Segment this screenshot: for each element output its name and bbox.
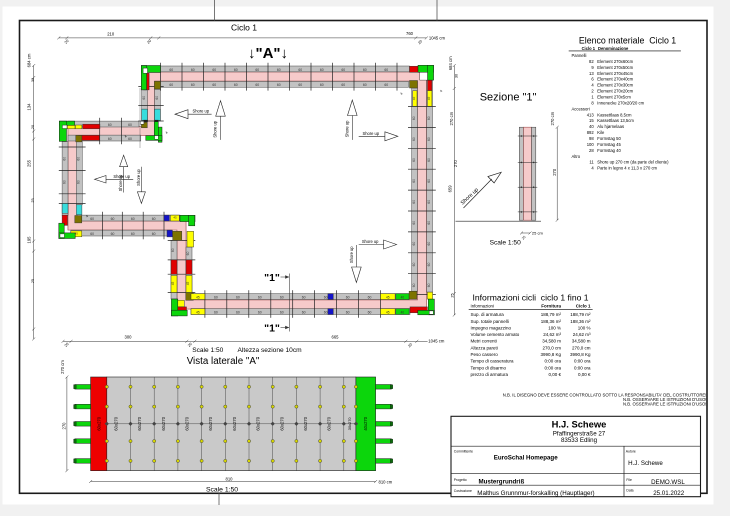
svg-text:60: 60 [302,295,306,299]
svg-text:665: 665 [332,334,340,339]
svg-text:60: 60 [234,68,238,72]
svg-text:270: 270 [62,422,67,430]
svg-text:100 %: 100 % [578,325,591,330]
svg-text:45: 45 [386,295,390,299]
svg-text:34,580 m: 34,580 m [572,339,591,344]
svg-text:134: 134 [26,103,31,111]
svg-text:Altro: Altro [572,154,581,159]
svg-text:810: 810 [226,476,234,481]
svg-text:60: 60 [412,242,416,246]
svg-text:60: 60 [341,68,345,72]
svg-text:60: 60 [384,68,388,72]
svg-text:659: 659 [448,185,453,193]
svg-text:270: 270 [453,159,458,167]
svg-text:Accessori: Accessori [572,106,590,111]
svg-text:100: 100 [587,142,595,147]
svg-text:Denominazione: Denominazione [598,46,629,51]
svg-text:Element 270x45cm: Element 270x45cm [597,71,633,76]
svg-text:60: 60 [298,83,302,87]
svg-text:30: 30 [455,74,459,78]
svg-text:60: 60 [255,68,259,72]
svg-text:60: 60 [427,179,431,183]
svg-text:60: 60 [368,310,372,314]
svg-text:60: 60 [427,263,431,267]
svg-text:Malthus Grunnmur-forskalling (: Malthus Grunnmur-forskalling (Hauptlager… [477,490,594,497]
svg-text:↓"A"↓: ↓"A"↓ [248,45,288,62]
svg-text:Sup. di armatura: Sup. di armatura [471,312,505,317]
svg-text:60: 60 [111,232,115,236]
svg-text:45: 45 [173,216,177,220]
svg-text:Autore: Autore [626,449,636,453]
svg-text:60: 60 [363,83,367,87]
svg-text:45: 45 [427,97,431,101]
svg-text:60: 60 [368,295,372,299]
svg-text:Element 270x50cm: Element 270x50cm [597,65,633,70]
svg-text:98: 98 [589,136,594,141]
svg-text:60: 60 [171,248,175,252]
svg-text:"1": "1" [264,272,280,284]
svg-text:Scale 1:50: Scale 1:50 [206,487,238,494]
svg-text:60: 60 [62,157,66,161]
svg-text:60x270: 60x270 [96,416,101,430]
svg-text:25: 25 [31,279,35,283]
svg-text:413: 413 [587,112,595,117]
svg-text:60: 60 [363,68,367,72]
svg-text:3990,8 Kg: 3990,8 Kg [570,352,591,357]
svg-text:Altezza sezione 10cm: Altezza sezione 10cm [238,347,303,354]
svg-text:Tempo di casseratura: Tempo di casseratura [471,359,515,364]
svg-text:60: 60 [427,116,431,120]
svg-text:60: 60 [142,96,146,100]
svg-text:60: 60 [427,137,431,141]
svg-text:Kile: Kile [597,130,605,135]
svg-text:24,62 m³: 24,62 m³ [573,332,591,337]
svg-text:Informazioni cicli ciclo 1 fi: Informazioni cicli ciclo 1 fino 1 [473,293,589,303]
svg-text:Committente: Committente [454,449,473,453]
svg-text:60: 60 [412,221,416,225]
svg-text:60: 60 [427,221,431,225]
svg-text:28: 28 [589,148,594,153]
svg-text:60: 60 [152,217,156,221]
svg-text:83533 Edling: 83533 Edling [561,437,598,444]
svg-text:Formstag 50: Formstag 50 [597,136,621,141]
svg-text:810 cm: 810 cm [379,479,393,484]
svg-text:60: 60 [346,295,350,299]
svg-text:60: 60 [255,83,259,87]
svg-text:60: 60 [412,116,416,120]
svg-text:0:00 ora: 0:00 ora [574,365,591,370]
svg-text:15: 15 [589,118,594,123]
svg-text:270 cm: 270 cm [60,360,65,374]
svg-text:60: 60 [427,200,431,204]
svg-text:60: 60 [236,310,240,314]
svg-text:3990,8 Kg: 3990,8 Kg [540,352,561,357]
svg-text:60: 60 [258,295,262,299]
svg-text:255: 255 [26,159,31,167]
svg-text:H.J. Schewe: H.J. Schewe [628,460,663,467]
svg-text:188,36 m²: 188,36 m² [570,319,591,324]
svg-text:60: 60 [212,68,216,72]
svg-text:60: 60 [236,295,240,299]
svg-text:40: 40 [401,310,405,314]
svg-text:20: 20 [31,125,35,129]
svg-text:Formstag 45: Formstag 45 [597,142,621,147]
svg-text:Parte in legno 4 x 11,3 x 270: Parte in legno 4 x 11,3 x 270 cm [597,166,657,171]
svg-text:0:00 ora: 0:00 ora [544,365,561,370]
svg-text:Data: Data [626,489,633,493]
svg-text:60: 60 [324,295,328,299]
svg-text:N.B. OSSERVARE LE ISTRUZIONI D: N.B. OSSERVARE LE ISTRUZIONI D'USO! [623,402,707,407]
svg-text:Shore up: Shore up [349,246,354,263]
svg-text:60: 60 [298,68,302,72]
svg-text:Tempo di disarmo: Tempo di disarmo [471,365,507,370]
svg-text:60: 60 [280,295,284,299]
svg-text:60x270: 60x270 [279,416,284,430]
svg-text:270 cm: 270 cm [449,111,454,125]
svg-text:60x270: 60x270 [161,416,166,430]
svg-text:60: 60 [280,310,284,314]
svg-text:892: 892 [587,130,595,135]
svg-text:24,62 m³: 24,62 m³ [543,332,561,337]
svg-text:60: 60 [77,157,81,161]
svg-text:Altezza pareti: Altezza pareti [471,345,498,350]
svg-text:60: 60 [412,283,416,287]
svg-text:60: 60 [155,96,159,100]
svg-text:Shore up 270 cm (da parte del: Shore up 270 cm (da parte del cliente) [597,160,669,165]
svg-text:40: 40 [401,295,405,299]
svg-text:60: 60 [128,137,132,141]
svg-text:45: 45 [412,97,416,101]
svg-text:H.J. Schewe: H.J. Schewe [552,418,607,429]
svg-text:60: 60 [412,200,416,204]
svg-text:60: 60 [320,83,324,87]
svg-text:30x270: 30x270 [347,417,352,431]
svg-text:60x270: 60x270 [303,416,308,430]
svg-text:684 cm: 684 cm [26,53,31,67]
svg-text:188,36 m²: 188,36 m² [541,319,562,324]
svg-text:Shore up: Shore up [213,120,218,137]
svg-text:60: 60 [341,83,345,87]
svg-text:60x270: 60x270 [185,416,190,430]
svg-text:45: 45 [196,310,200,314]
svg-text:Fornitura: Fornitura [541,304,561,309]
svg-text:Alu hjørnelaas: Alu hjørnelaas [597,124,624,129]
svg-text:Elenco materiale Ciclo 1: Elenco materiale Ciclo 1 [579,35,676,45]
svg-text:60: 60 [111,217,115,221]
svg-text:25: 25 [451,293,455,297]
svg-text:270: 270 [552,168,557,176]
svg-text:25 cm: 25 cm [532,231,544,236]
svg-text:45: 45 [386,310,390,314]
svg-text:45: 45 [186,282,190,286]
svg-text:60: 60 [90,232,94,236]
svg-text:60: 60 [324,310,328,314]
svg-text:60: 60 [277,83,281,87]
svg-text:60: 60 [186,252,190,256]
svg-text:60: 60 [427,242,431,246]
svg-text:34,580 m: 34,580 m [542,339,561,344]
svg-text:60: 60 [214,295,218,299]
svg-text:Scale 1:50: Scale 1:50 [490,240,521,247]
svg-text:270,0 cm: 270,0 cm [542,345,561,350]
svg-text:60: 60 [214,310,218,314]
svg-text:60x270: 60x270 [137,416,142,430]
svg-text:60: 60 [108,123,112,127]
svg-text:0:00 ora: 0:00 ora [574,359,591,364]
svg-text:Element 270x20cm: Element 270x20cm [597,89,633,94]
svg-text:60: 60 [258,310,262,314]
svg-text:60: 60 [212,83,216,87]
svg-text:"1": "1" [264,323,280,335]
svg-text:Element 270x60cm: Element 270x60cm [597,59,633,64]
svg-text:11: 11 [589,160,594,165]
svg-text:60: 60 [412,137,416,141]
svg-text:Pannelli: Pannelli [572,53,587,58]
svg-text:60: 60 [346,310,350,314]
svg-text:60: 60 [131,232,135,236]
svg-text:Ciclo 1: Ciclo 1 [582,46,596,51]
svg-text:60: 60 [62,180,66,184]
svg-text:60: 60 [320,68,324,72]
svg-text:60x270: 60x270 [327,416,332,430]
svg-text:60: 60 [169,68,173,72]
svg-text:Informazioni: Informazioni [471,304,494,309]
svg-text:60: 60 [277,68,281,72]
svg-text:45: 45 [196,295,200,299]
svg-text:Sezione "1": Sezione "1" [480,92,537,104]
svg-text:0,00 €: 0,00 € [578,372,591,377]
svg-text:Ciclo 1: Ciclo 1 [231,23,257,33]
svg-text:60x270: 60x270 [113,416,118,430]
svg-text:30: 30 [31,78,35,82]
svg-text:Shore up: Shore up [362,239,379,244]
svg-text:60: 60 [128,123,132,127]
svg-text:25: 25 [31,198,35,202]
svg-text:60: 60 [427,283,431,287]
svg-text:60: 60 [412,158,416,162]
svg-text:270,0 cm: 270,0 cm [572,345,591,350]
svg-text:60: 60 [169,83,173,87]
svg-text:Volume cemento armato: Volume cemento armato [471,332,520,337]
svg-text:60: 60 [131,217,135,221]
svg-text:Kassettlaas 8,5cm: Kassettlaas 8,5cm [597,112,632,117]
svg-text:760: 760 [406,31,414,36]
svg-text:1045 cm: 1045 cm [429,35,446,40]
svg-text:188,79 m²: 188,79 m² [570,312,591,317]
svg-text:60: 60 [412,263,416,267]
svg-text:25.01.2022: 25.01.2022 [653,490,685,497]
svg-text:Element 270x30cm: Element 270x30cm [597,83,633,88]
svg-text:DEMO.WSL: DEMO.WSL [651,479,685,486]
svg-text:60: 60 [427,158,431,162]
svg-text:Kassettlaas 13,5cm: Kassettlaas 13,5cm [597,118,634,123]
svg-text:188,79 m²: 188,79 m² [541,312,562,317]
svg-text:Shore up: Shore up [136,168,141,185]
svg-text:Mustergrundriß: Mustergrundriß [479,478,525,485]
svg-text:60: 60 [108,137,112,141]
svg-text:82: 82 [589,59,594,64]
svg-text:Shore up: Shore up [344,120,349,137]
svg-text:40x270: 40x270 [363,416,368,430]
svg-text:prezzo di armatura: prezzo di armatura [471,372,509,377]
svg-text:270 cm: 270 cm [550,111,555,125]
svg-text:Progetto: Progetto [454,478,467,482]
svg-text:195: 195 [26,236,31,244]
svg-text:Costruzione: Costruzione [454,489,472,493]
svg-text:60x270: 60x270 [208,416,213,430]
svg-text:Metri correnti: Metri correnti [471,339,497,344]
svg-text:60: 60 [152,232,156,236]
svg-text:Innenecke 270x20/20 cm: Innenecke 270x20/20 cm [597,100,644,105]
svg-text:Shore up: Shore up [362,131,379,136]
svg-text:60: 60 [302,310,306,314]
svg-text:Peso cassero: Peso cassero [471,352,499,357]
svg-text:210: 210 [107,32,115,37]
svg-text:60: 60 [191,83,195,87]
svg-text:Shore up: Shore up [192,109,209,114]
svg-text:60x270: 60x270 [256,416,261,430]
svg-text:File: File [626,478,632,482]
svg-text:300: 300 [125,334,133,339]
svg-text:13: 13 [589,71,594,76]
svg-text:45: 45 [75,232,79,236]
svg-text:60: 60 [412,179,416,183]
svg-text:0:00 ora: 0:00 ora [544,359,561,364]
svg-text:100 %: 100 % [548,325,561,330]
svg-text:Sup. totale pannelli: Sup. totale pannelli [471,319,509,324]
svg-text:60: 60 [191,68,195,72]
svg-text:0,00 €: 0,00 € [548,372,561,377]
svg-text:Ciclo 1: Ciclo 1 [576,304,591,309]
svg-text:Shore up: Shore up [113,174,130,179]
svg-text:684 cm: 684 cm [448,56,453,70]
svg-text:1045 cm: 1045 cm [428,339,445,344]
svg-text:60: 60 [384,83,388,87]
svg-text:60: 60 [234,83,238,87]
svg-text:Scale 1:50: Scale 1:50 [192,347,223,354]
svg-text:EuroSchal Homepage: EuroSchal Homepage [494,455,559,462]
svg-text:60x270: 60x270 [232,416,237,430]
svg-text:Element 270x5cm: Element 270x5cm [597,95,631,100]
svg-text:Element 270x40cm: Element 270x40cm [597,77,633,82]
svg-text:Formstag 40: Formstag 40 [597,148,621,153]
svg-text:40: 40 [589,124,594,129]
svg-text:45: 45 [171,282,175,286]
svg-text:60: 60 [77,180,81,184]
svg-text:Impegno magazzino: Impegno magazzino [471,325,512,330]
svg-text:Vista laterale "A": Vista laterale "A" [187,356,260,367]
svg-text:60: 60 [90,217,94,221]
